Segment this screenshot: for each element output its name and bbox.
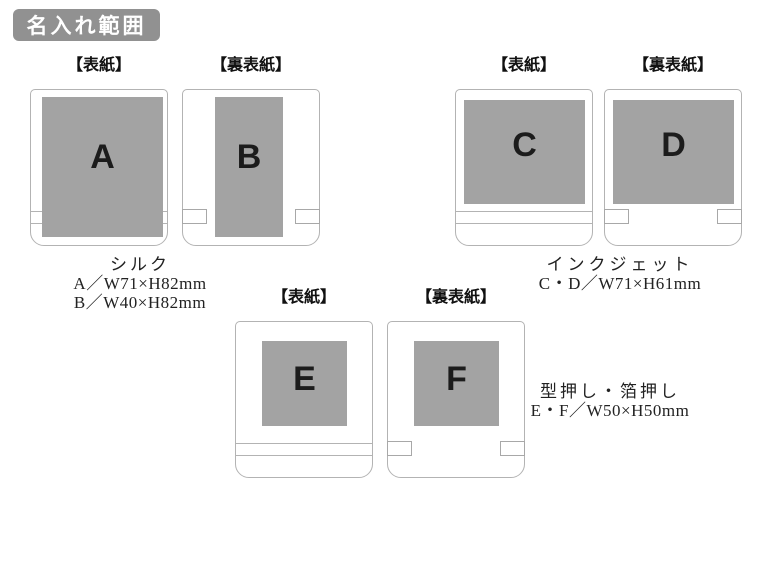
imprint-area-b: B (215, 97, 283, 237)
band-slot-right (717, 209, 742, 224)
panel-label-front: 【表紙】 (235, 288, 373, 308)
print-method-name: シルク (28, 255, 252, 274)
band-line (236, 443, 372, 456)
imprint-area-f: F (414, 341, 499, 426)
band-line (456, 211, 592, 224)
area-letter: A (90, 140, 115, 174)
back-cover-panel-b: B (182, 89, 320, 246)
print-method-name: インクジェット (480, 255, 760, 274)
print-method-name: 型押し・箔押し (528, 382, 692, 401)
imprint-area-c: C (464, 100, 585, 204)
cover-unit-d: 【裏表紙】 D (604, 56, 742, 246)
imprint-area-e: E (262, 341, 347, 426)
title-badge-label: 名入れ範囲 (27, 10, 147, 40)
band-slot-right (500, 441, 525, 456)
cover-unit-f: 【裏表紙】 F (387, 288, 525, 478)
panel-label-front: 【表紙】 (30, 56, 168, 76)
band-slot-left (387, 441, 412, 456)
band-slot-left (182, 209, 207, 224)
imprint-area-d: D (613, 100, 734, 204)
back-cover-panel-f: F (387, 321, 525, 478)
band-slot-left (604, 209, 629, 224)
back-cover-panel-d: D (604, 89, 742, 246)
size-spec-cd: C・D／W71×H61mm (480, 274, 760, 293)
size-spec-b: B／W40×H82mm (28, 293, 252, 312)
cover-unit-b: 【裏表紙】 B (182, 56, 320, 246)
size-spec-a: A／W71×H82mm (28, 274, 252, 293)
panel-label-back: 【裏表紙】 (182, 56, 320, 76)
imprint-area-diagram: 名入れ範囲 【表紙】 A 【裏表紙】 B 【表紙】 C (0, 0, 760, 570)
front-cover-panel-c: C (455, 89, 593, 246)
area-letter: C (512, 128, 537, 162)
emboss-caption: 型押し・箔押し E・F／W50×H50mm (528, 382, 692, 420)
panel-label-front: 【表紙】 (455, 56, 593, 76)
size-spec-ef: E・F／W50×H50mm (528, 401, 692, 420)
area-letter: D (661, 128, 686, 162)
silk-caption: シルク A／W71×H82mm B／W40×H82mm (28, 255, 252, 312)
cover-unit-a: 【表紙】 A (30, 56, 168, 246)
cover-unit-c: 【表紙】 C (455, 56, 593, 246)
band-slot-right (295, 209, 320, 224)
area-letter: B (237, 140, 262, 174)
imprint-area-a: A (42, 97, 163, 237)
area-letter: F (446, 362, 467, 396)
title-badge: 名入れ範囲 (13, 9, 160, 41)
inkjet-caption: インクジェット C・D／W71×H61mm (480, 255, 760, 293)
area-letter: E (293, 362, 316, 396)
front-cover-panel-e: E (235, 321, 373, 478)
front-cover-panel-a: A (30, 89, 168, 246)
panel-label-back: 【裏表紙】 (604, 56, 742, 76)
cover-unit-e: 【表紙】 E (235, 288, 373, 478)
